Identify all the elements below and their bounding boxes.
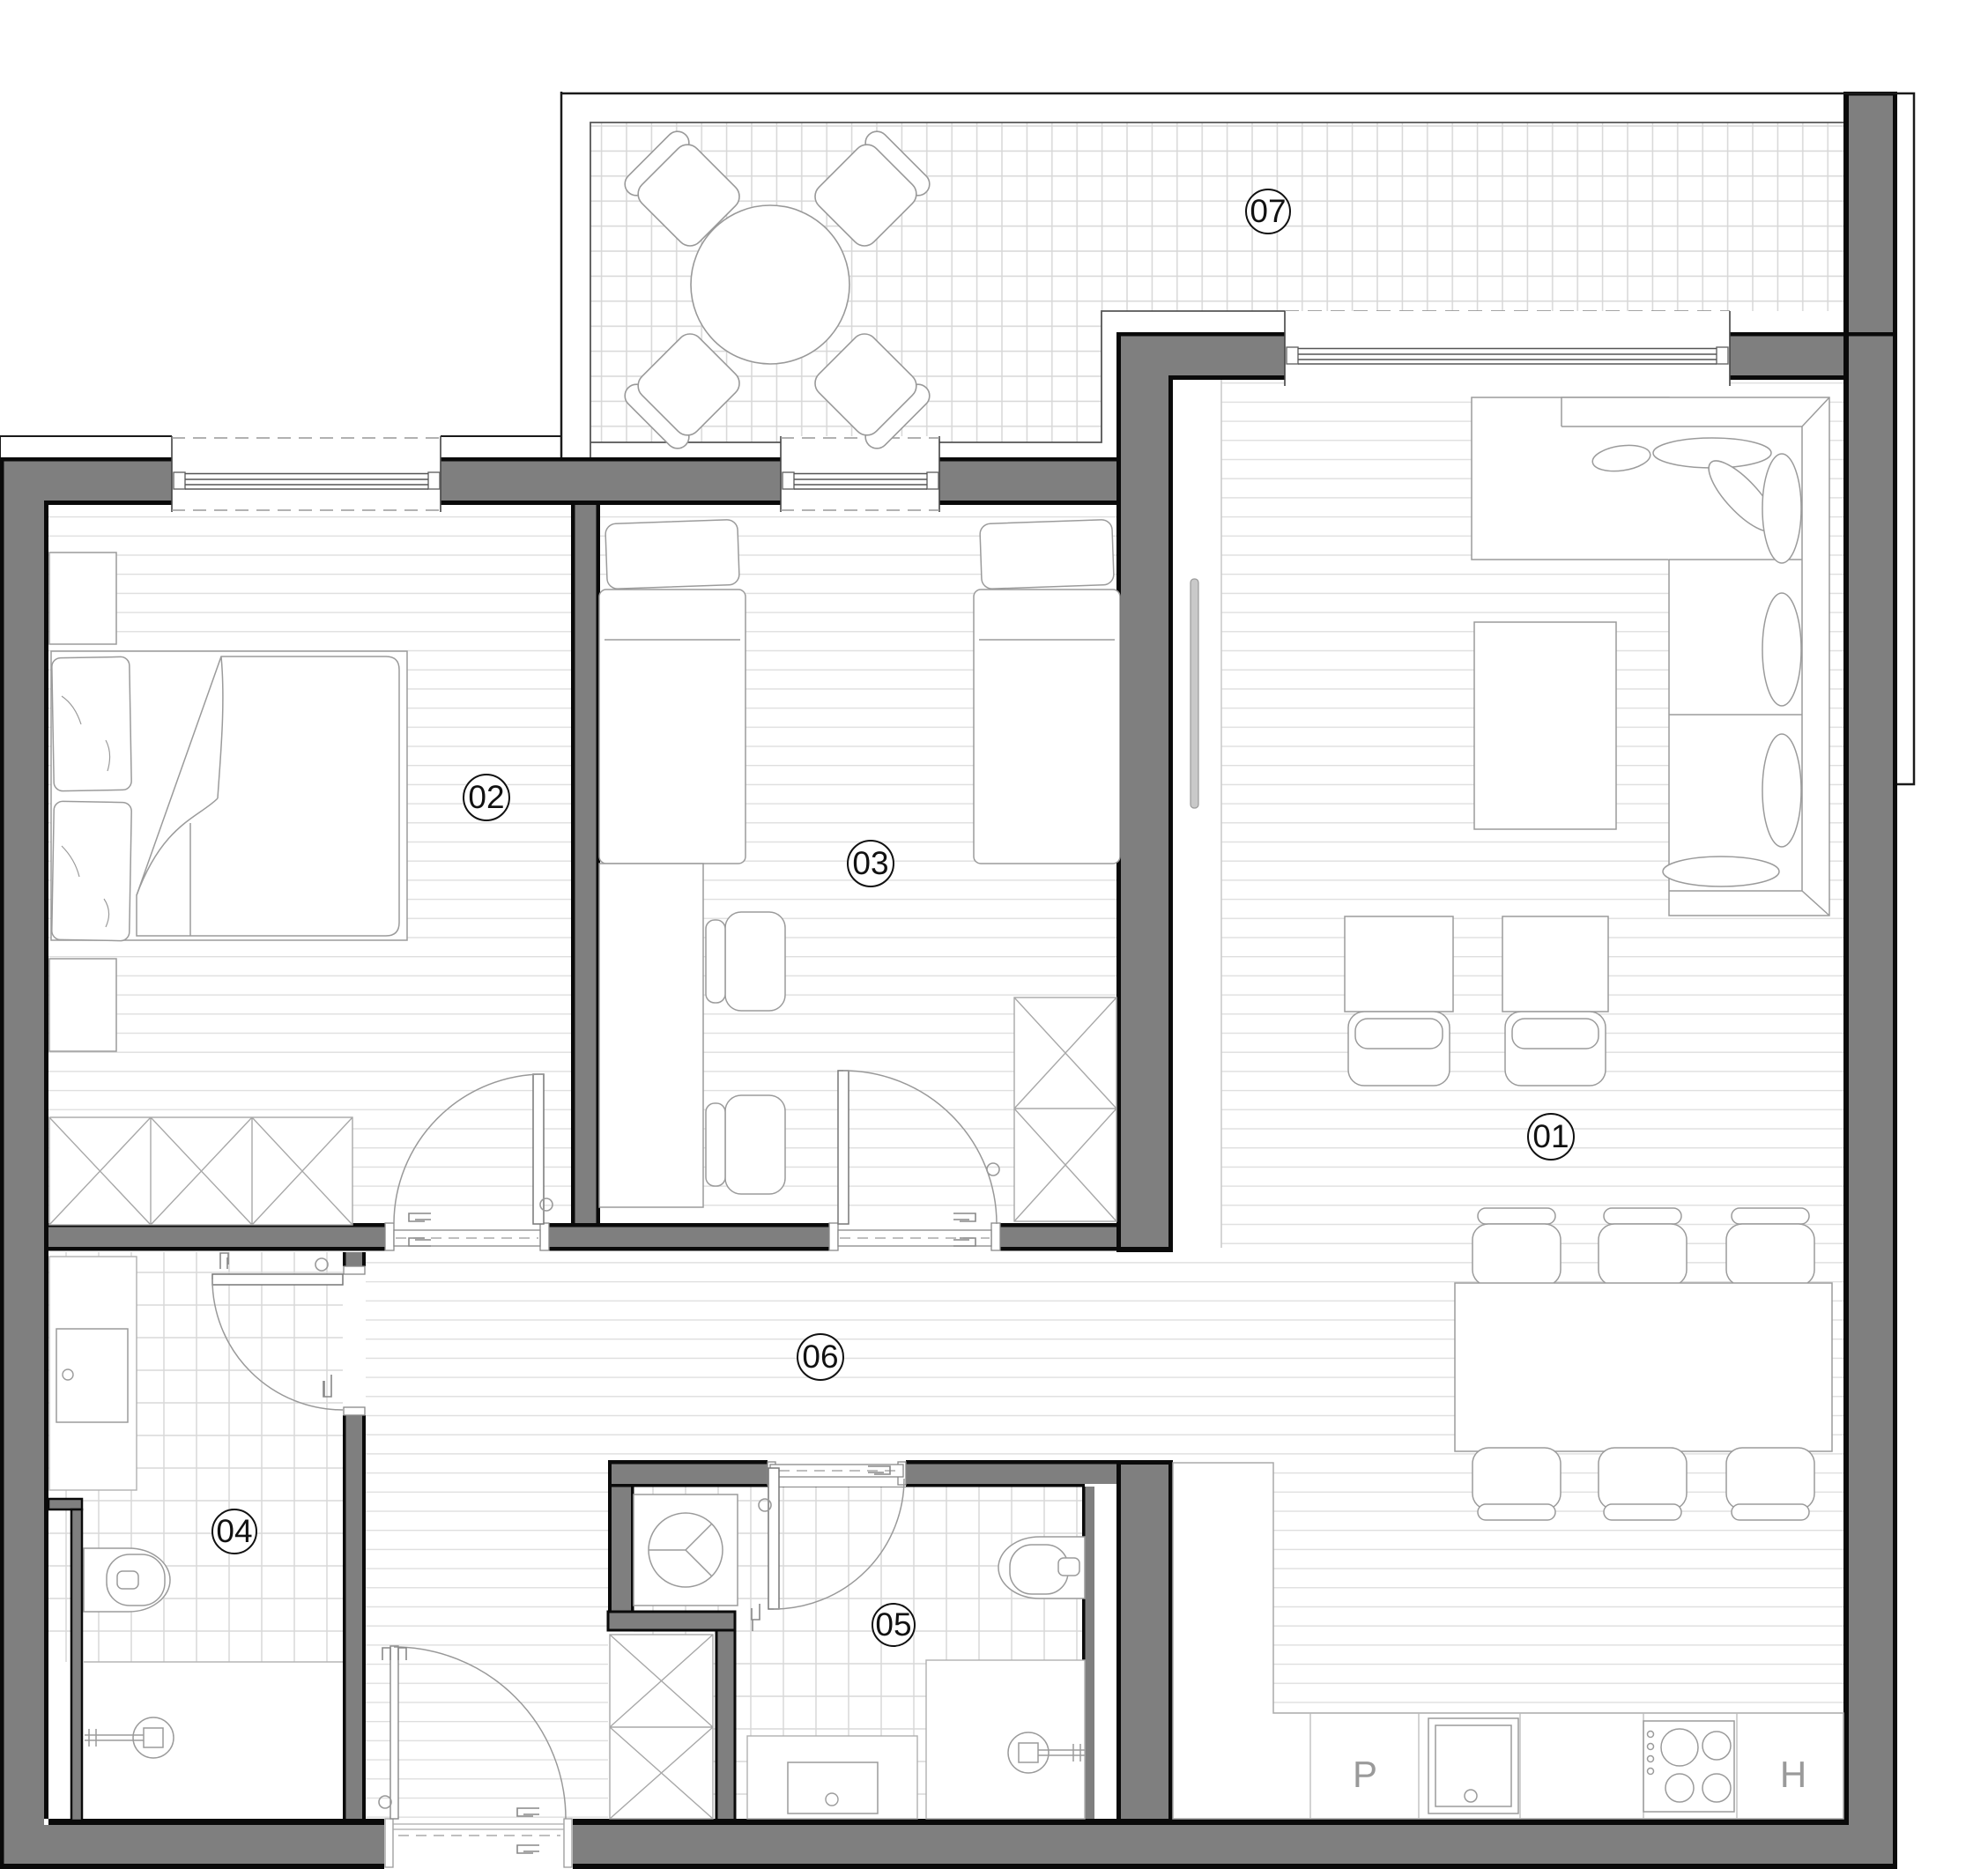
svg-text:06: 06: [802, 1339, 838, 1375]
svg-text:03: 03: [852, 845, 888, 881]
svg-text:02: 02: [468, 779, 504, 815]
svg-text:H: H: [1780, 1754, 1806, 1795]
svg-text:04: 04: [216, 1513, 252, 1549]
svg-text:P: P: [1353, 1754, 1377, 1795]
svg-text:05: 05: [875, 1606, 911, 1643]
svg-text:07: 07: [1250, 193, 1286, 229]
svg-text:01: 01: [1532, 1118, 1569, 1154]
